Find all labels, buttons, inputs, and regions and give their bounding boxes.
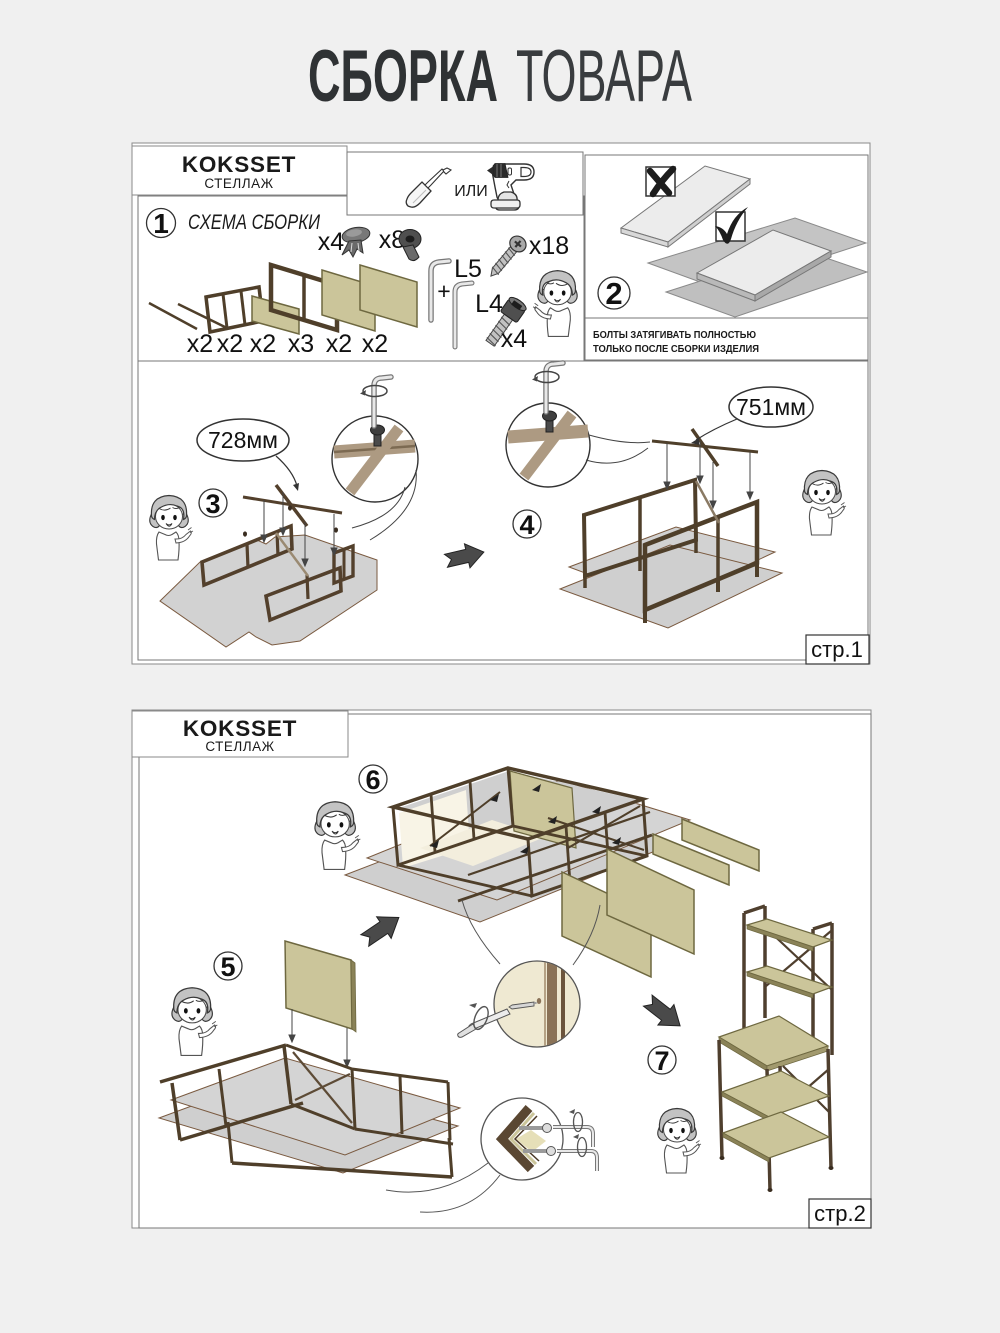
svg-text:x2: x2 — [250, 330, 276, 358]
svg-text:СТЕЛЛАЖ: СТЕЛЛАЖ — [204, 176, 273, 191]
svg-text:x2: x2 — [362, 330, 388, 358]
svg-text:728мм: 728мм — [208, 427, 278, 453]
svg-text:СХЕМА СБОРКИ: СХЕМА СБОРКИ — [188, 210, 320, 234]
svg-text:751мм: 751мм — [736, 394, 806, 420]
svg-text:x2: x2 — [187, 330, 213, 358]
svg-text:7: 7 — [654, 1046, 669, 1076]
svg-text:5: 5 — [220, 952, 235, 982]
svg-text:СТЕЛЛАЖ: СТЕЛЛАЖ — [205, 739, 274, 754]
svg-text:x4: x4 — [501, 325, 528, 353]
svg-text:KOKSSET: KOKSSET — [182, 152, 296, 177]
svg-text:x4: x4 — [318, 228, 345, 256]
svg-text:x2: x2 — [326, 330, 352, 358]
svg-text:6: 6 — [365, 765, 380, 795]
svg-text:ИЛИ: ИЛИ — [454, 183, 488, 200]
svg-text:L4: L4 — [475, 290, 503, 318]
svg-text:1: 1 — [153, 208, 169, 239]
svg-text:стр.2: стр.2 — [814, 1201, 866, 1226]
svg-text:2: 2 — [605, 276, 622, 311]
svg-text:стр.1: стр.1 — [811, 637, 863, 662]
svg-text:4: 4 — [519, 510, 534, 540]
svg-text:x18: x18 — [529, 232, 569, 260]
svg-text:x3: x3 — [288, 330, 314, 358]
svg-text:ТОЛЬКО ПОСЛЕ СБОРКИ ИЗДЕЛИЯ: ТОЛЬКО ПОСЛЕ СБОРКИ ИЗДЕЛИЯ — [593, 344, 759, 355]
svg-text:KOKSSET: KOKSSET — [183, 716, 297, 741]
svg-text:x2: x2 — [217, 330, 243, 358]
svg-text:БОЛТЫ ЗАТЯГИВАТЬ ПОЛНОСТЬЮ: БОЛТЫ ЗАТЯГИВАТЬ ПОЛНОСТЬЮ — [593, 330, 756, 341]
svg-text:+: + — [437, 278, 450, 304]
svg-text:СБОРКА: СБОРКА — [308, 36, 498, 117]
svg-text:ТОВАРА: ТОВАРА — [516, 36, 692, 117]
svg-text:L5: L5 — [454, 255, 482, 283]
svg-text:3: 3 — [205, 489, 220, 519]
